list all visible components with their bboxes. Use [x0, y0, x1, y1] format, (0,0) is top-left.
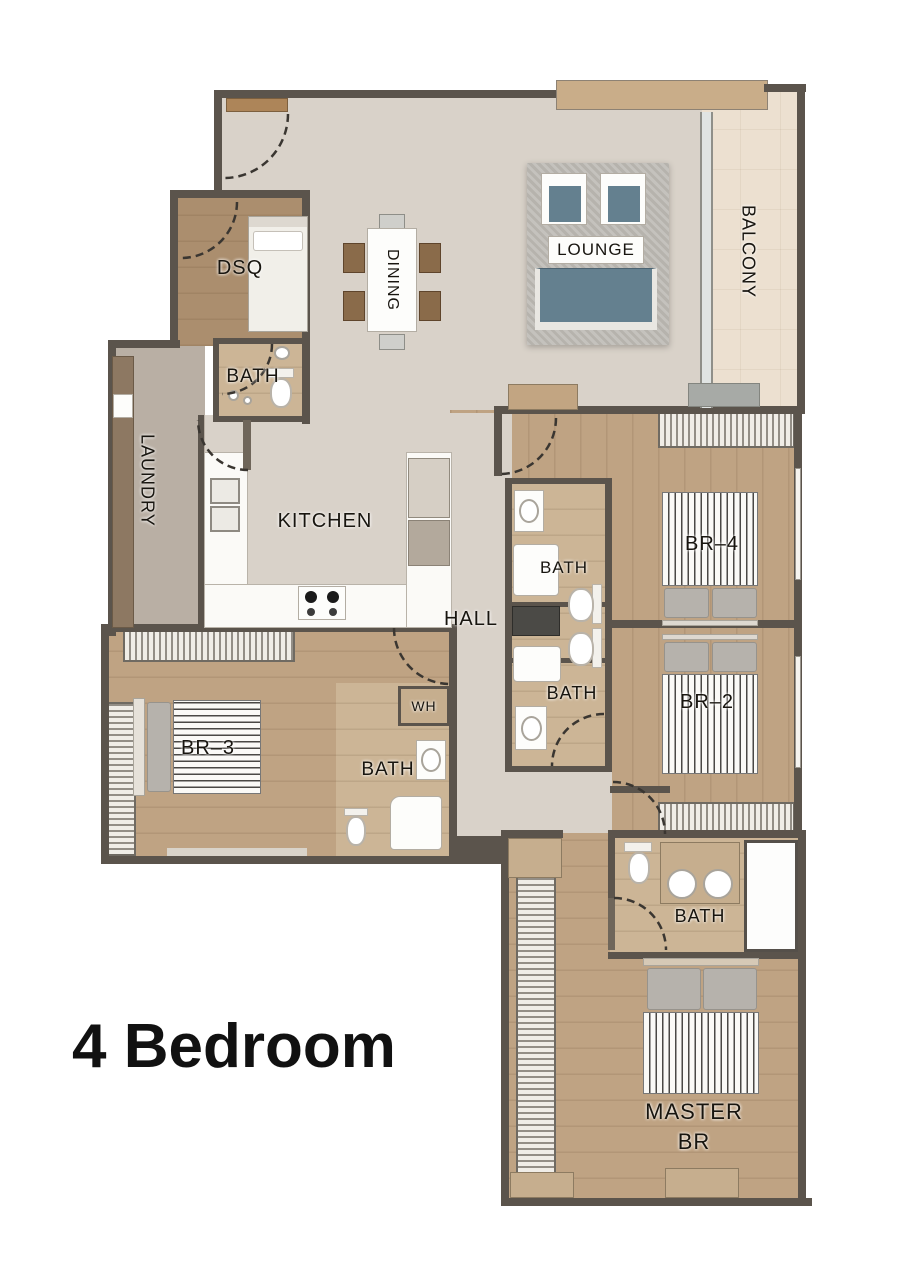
headboard: [662, 620, 758, 626]
kitchen-appliance: [408, 520, 450, 566]
headboard: [133, 698, 145, 796]
hall-label: HALL: [432, 606, 510, 632]
master-bath-label: BATH: [664, 904, 736, 928]
br4-label: BR–4: [662, 531, 762, 557]
br3-label: BR–3: [158, 735, 258, 761]
wh-label: WH: [411, 698, 436, 714]
pillow: [664, 642, 709, 672]
dining-table: DINING: [367, 228, 417, 332]
master-label-text: MASTER: [645, 1099, 743, 1125]
wall-segment: [501, 830, 563, 838]
wall-segment: [494, 414, 502, 476]
wall-segment: [505, 478, 612, 484]
kitchen-label: KITCHEN: [275, 508, 375, 534]
floor-plan: DINING: [0, 0, 906, 1280]
sink: [521, 716, 542, 741]
shower: [744, 840, 798, 952]
vanity: [660, 842, 740, 904]
wall-segment: [798, 830, 806, 1206]
wall-segment: [797, 84, 805, 414]
dining-chair: [343, 291, 365, 321]
master-label-text: BR: [678, 1129, 711, 1155]
wall-segment: [700, 406, 804, 414]
kitchen-sink: [210, 506, 240, 532]
wall-segment: [501, 1198, 812, 1206]
wall-segment: [610, 786, 670, 793]
br4-label-text: BR–4: [685, 533, 739, 556]
hall-label-text: HALL: [444, 608, 498, 631]
toiletry-item: [243, 396, 252, 405]
sink: [421, 748, 441, 772]
wall-segment: [101, 856, 459, 864]
entry-door-leaf: [226, 98, 288, 112]
sink: [274, 346, 290, 360]
kitchen-label-text: KITCHEN: [278, 510, 373, 533]
bath-label-text: BATH: [540, 558, 588, 578]
balcony-label: BALCONY: [731, 178, 765, 326]
dsq-label-text: DSQ: [217, 257, 263, 280]
wall-segment: [213, 338, 305, 344]
dining-label: DINING: [383, 249, 401, 311]
armchair-seat: [549, 186, 581, 222]
tv-console: [508, 384, 578, 410]
bath-label-text: BATH: [226, 366, 279, 388]
kitchen-sink: [210, 478, 240, 504]
wall-segment: [505, 766, 612, 772]
burner: [307, 608, 315, 616]
laundry-label: LAUNDRY: [130, 408, 164, 552]
wall-segment: [608, 830, 806, 838]
wall-segment: [214, 90, 572, 98]
dsq-label: DSQ: [205, 255, 275, 281]
vanity-niche: [512, 606, 560, 636]
headboard: [662, 634, 758, 640]
br3-wardrobe: [106, 702, 136, 856]
wood-beam: [556, 80, 768, 110]
toilet: [568, 588, 594, 622]
toilet-tank: [344, 808, 368, 816]
toiletry-item: [228, 390, 239, 401]
master-wardrobe: [516, 866, 556, 1174]
bath-bottom-label: BATH: [536, 681, 608, 705]
br2-label-text: BR–2: [680, 691, 734, 714]
sink-pedestal: [514, 490, 544, 532]
water-heater-closet: WH: [398, 686, 450, 726]
sink: [519, 499, 539, 523]
sink-pedestal: [515, 706, 547, 750]
br4-window: [795, 468, 801, 580]
bench-cabinet: [665, 1168, 739, 1198]
toilet: [628, 852, 650, 884]
bench: [167, 848, 307, 856]
bath-label-text: BATH: [547, 683, 598, 704]
wall-segment: [108, 340, 180, 348]
balcony-sliding-door: [700, 112, 713, 408]
br3-bath-label: BATH: [352, 758, 424, 782]
toilet: [346, 816, 366, 846]
wall-segment: [449, 836, 509, 864]
master-bed: [643, 1012, 759, 1094]
balcony-label-text: BALCONY: [738, 205, 759, 298]
headboard: [249, 217, 307, 227]
sink: [667, 869, 697, 899]
laundry-label-text: LAUNDRY: [137, 434, 158, 527]
burner: [327, 591, 339, 603]
wall-segment: [170, 190, 178, 346]
armchair-seat: [608, 186, 640, 222]
wall-segment: [213, 416, 310, 422]
toilet-tank: [624, 842, 652, 852]
master-label-line1: MASTER: [624, 1098, 764, 1126]
br3-closet: [123, 630, 295, 662]
wall-segment: [214, 90, 222, 196]
bath-top-label: BATH: [528, 556, 600, 580]
dining-chair: [419, 243, 441, 273]
headboard: [643, 958, 759, 966]
br2-label: BR–2: [657, 689, 757, 715]
pillow: [712, 642, 757, 672]
media-cabinet: [688, 383, 760, 407]
armchair: [541, 173, 587, 225]
toilet: [568, 632, 594, 666]
wall-segment: [608, 832, 615, 900]
wall-segment: [449, 624, 457, 864]
wall-segment: [101, 628, 109, 864]
dsq-bath-label: BATH: [217, 364, 289, 390]
wall-segment: [501, 830, 509, 1206]
pillow: [664, 588, 709, 618]
bath-label-text: BATH: [675, 906, 726, 927]
plan-title: 4 Bedroom: [72, 1004, 472, 1088]
door-leaf: [243, 420, 251, 470]
pillow: [703, 968, 757, 1010]
dining-chair: [343, 243, 365, 273]
door-leaf: [608, 898, 615, 950]
burner: [305, 591, 317, 603]
br3-label-text: BR–3: [181, 737, 235, 760]
pillow: [253, 231, 303, 251]
br2-window: [795, 656, 801, 768]
dining-chair: [379, 334, 405, 350]
lounge-label: LOUNGE: [548, 236, 644, 264]
burner: [329, 608, 337, 616]
master-label-line2: BR: [624, 1128, 764, 1156]
armchair: [600, 173, 646, 225]
cabinet: [510, 1172, 574, 1198]
plan-title-text: 4 Bedroom: [72, 1011, 396, 1082]
lounge-label-text: LOUNGE: [557, 240, 635, 260]
sofa: [535, 268, 657, 330]
stove: [298, 586, 346, 620]
bath-label-text: BATH: [361, 759, 414, 781]
dresser: [508, 838, 562, 878]
wall-segment: [170, 190, 310, 198]
pillow: [647, 968, 701, 1010]
sink: [703, 869, 733, 899]
shower: [390, 796, 442, 850]
fridge: [408, 458, 450, 518]
pillow: [712, 588, 757, 618]
br4-closet: [658, 412, 795, 448]
bathtub: [513, 646, 561, 682]
dining-chair: [419, 291, 441, 321]
